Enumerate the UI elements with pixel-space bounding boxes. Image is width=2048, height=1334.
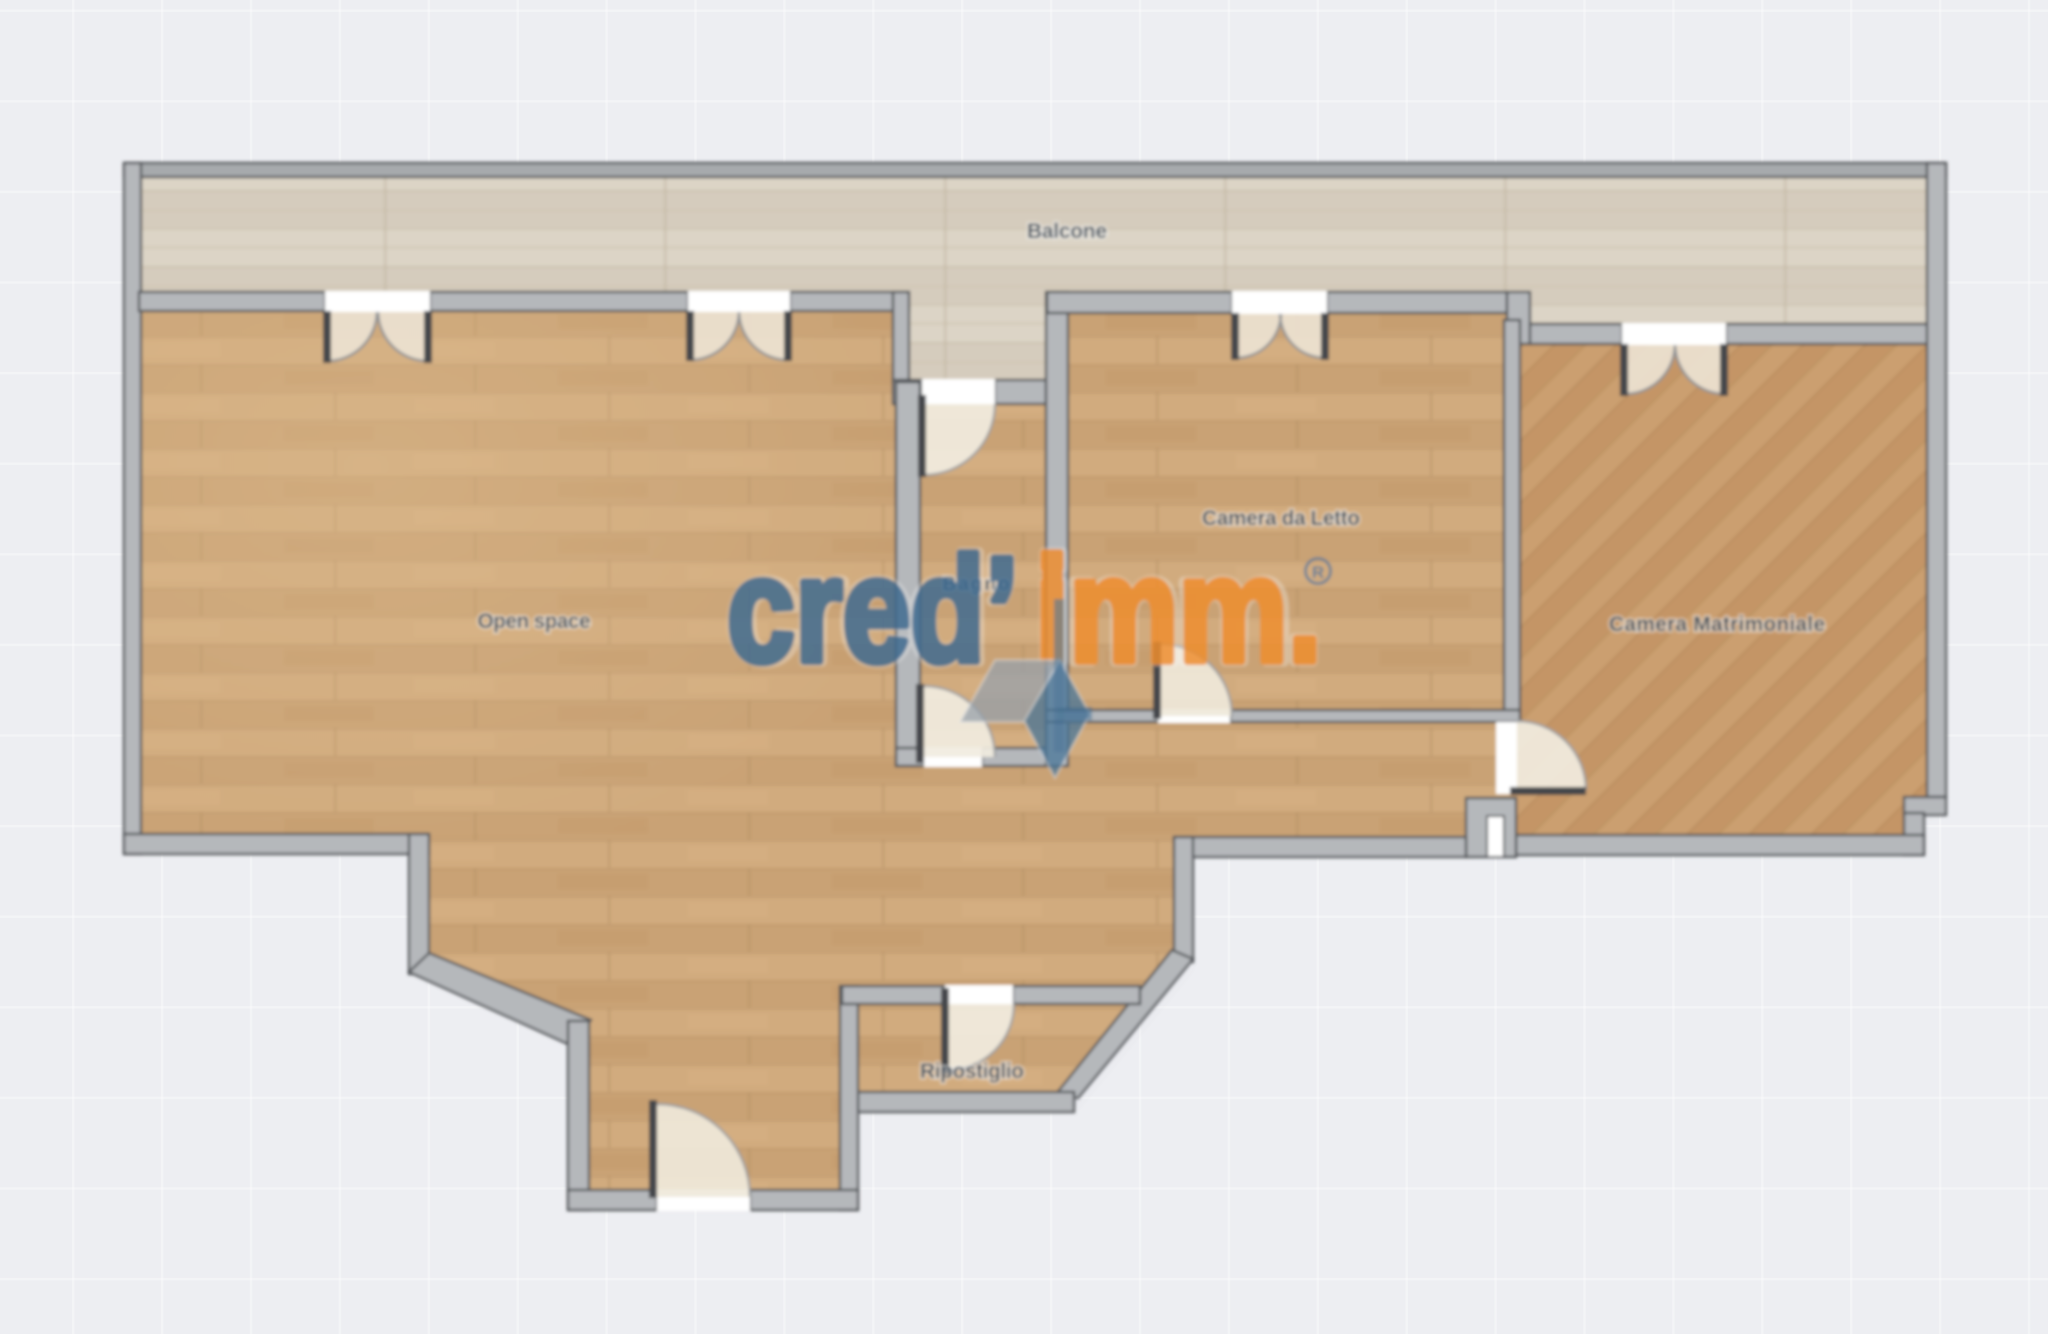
svg-text:Ripostiglio: Ripostiglio	[920, 1060, 1024, 1083]
svg-text:Balcone: Balcone	[1027, 220, 1107, 243]
svg-text:Camera Matrimoniale: Camera Matrimoniale	[1609, 613, 1825, 636]
svg-text:cred’: cred’	[727, 526, 1019, 692]
svg-text:R: R	[1312, 563, 1324, 582]
svg-text:imm.: imm.	[1035, 526, 1322, 692]
svg-text:Open space: Open space	[478, 610, 591, 633]
